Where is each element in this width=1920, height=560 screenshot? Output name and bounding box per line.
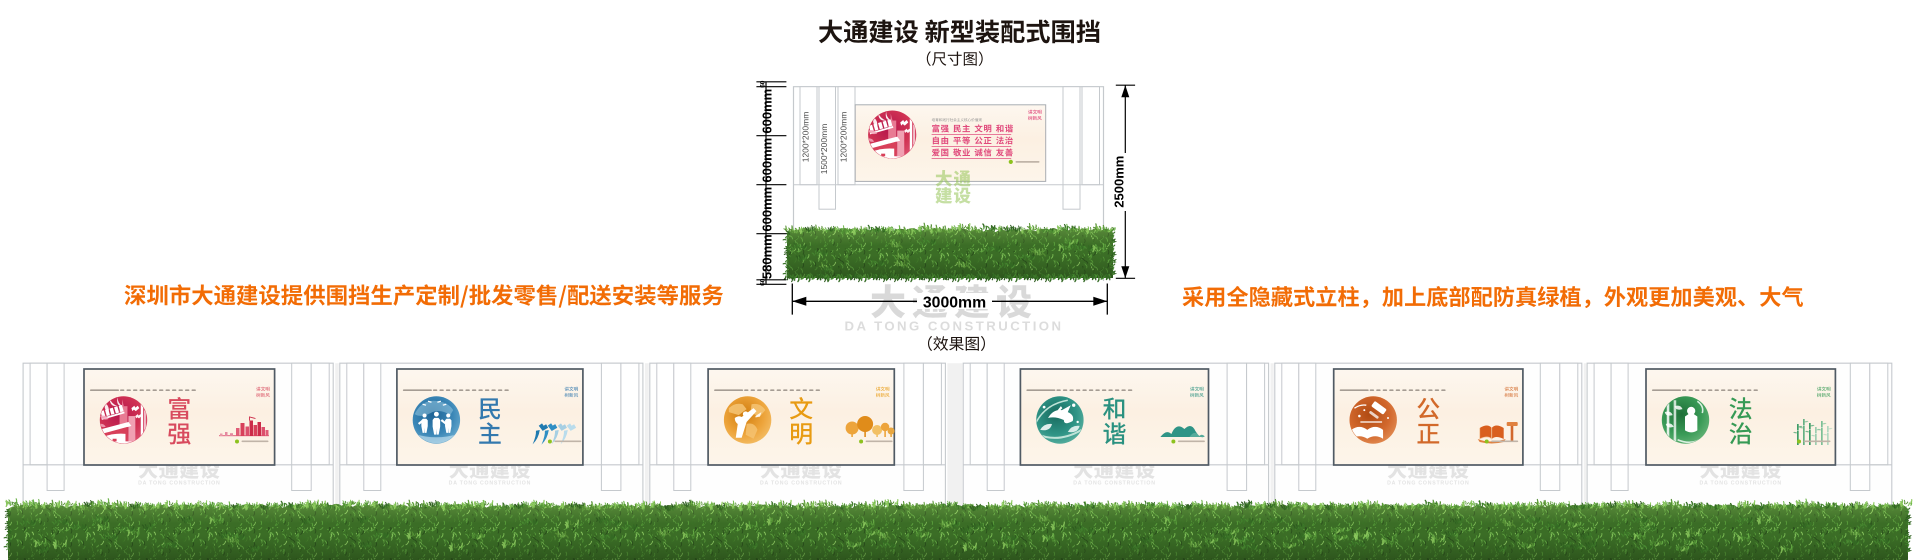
svg-text:1500*200mm: 1500*200mm xyxy=(819,124,829,175)
svg-text:600mm: 600mm xyxy=(760,89,775,134)
svg-text:600mm: 600mm xyxy=(760,138,775,183)
svg-text:600mm: 600mm xyxy=(760,187,775,232)
svg-text:1200*200mm: 1200*200mm xyxy=(801,112,811,163)
svg-text:580mm: 580mm xyxy=(760,234,775,279)
svg-text:1200*200mm: 1200*200mm xyxy=(839,112,849,163)
svg-text:3000mm: 3000mm xyxy=(923,294,986,311)
svg-text:DA TONG CONSTRUCTION: DA TONG CONSTRUCTION xyxy=(845,319,1064,334)
svg-text:60: 60 xyxy=(760,80,767,88)
svg-text:60: 60 xyxy=(760,278,767,286)
svg-text:2500mm: 2500mm xyxy=(1112,156,1127,208)
